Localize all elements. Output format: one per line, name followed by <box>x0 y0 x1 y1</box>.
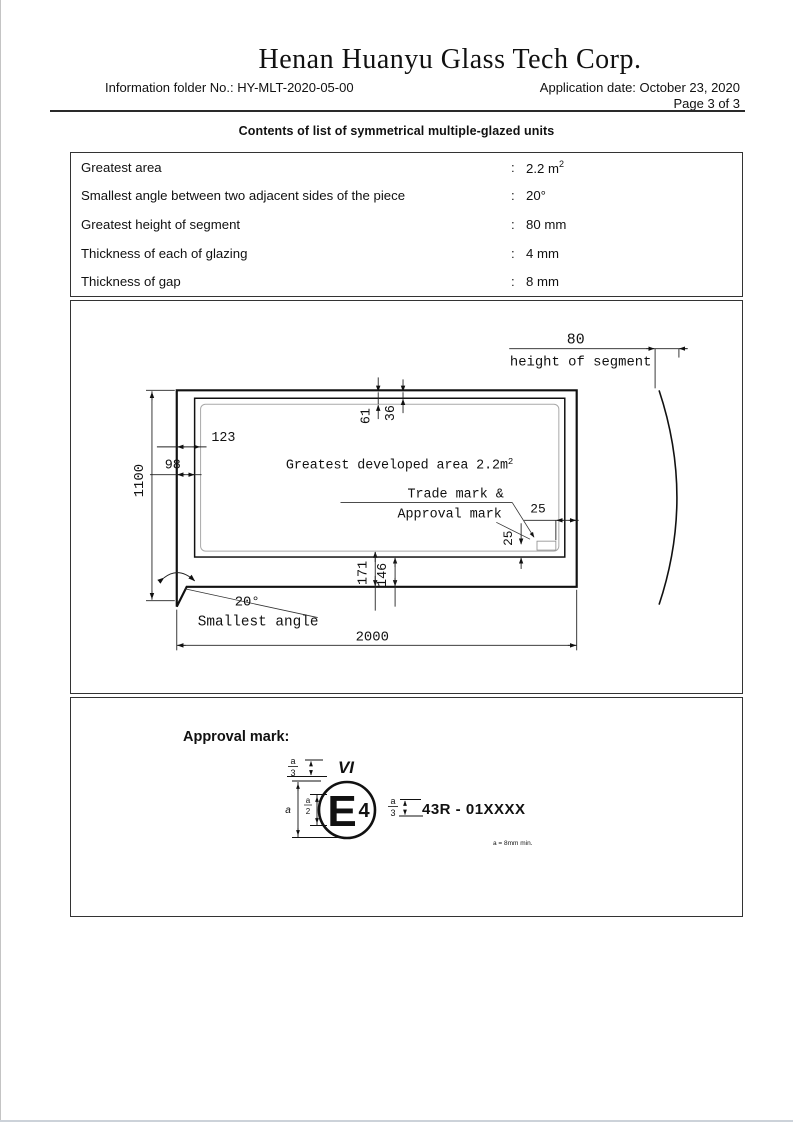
document-page: Henan Huanyu Glass Tech Corp. Informatio… <box>0 0 793 1122</box>
dim-top-insets: 61 36 <box>359 377 403 424</box>
dim-80-label: 80 <box>567 333 585 349</box>
approval-code: 43R - 01XXXX <box>422 801 526 818</box>
smallest-angle-callout: 20° Smallest angle <box>164 573 319 631</box>
spec-value: 8 mm <box>525 274 559 289</box>
spec-colon: : <box>511 274 525 289</box>
table-row: Smallest angle between two adjacent side… <box>71 182 742 211</box>
spec-value: 2.2 m2 <box>525 159 564 176</box>
dim-height-of-segment: 80 height of segment <box>509 333 688 605</box>
spec-colon: : <box>511 160 525 175</box>
dim-36-label: 36 <box>384 405 399 421</box>
dim-a3-right: a 3 <box>388 796 423 818</box>
spec-colon: : <box>511 188 525 203</box>
page-left-edge <box>0 0 1 1122</box>
dim-25v-label: 25 <box>501 530 516 545</box>
dim-a3-top: a 3 <box>287 756 327 778</box>
dim-1100-label: 1100 <box>132 464 148 497</box>
dim-bottom-insets: 171 146 <box>356 552 395 611</box>
table-row: Thickness of gap : 8 mm <box>71 267 742 296</box>
glazing-unit-drawing: 1100 2000 80 height of segment <box>71 301 742 692</box>
spec-label: Greatest height of segment <box>71 217 511 232</box>
trademark-callout-line2: Approval mark <box>397 507 501 522</box>
dim-171-label: 171 <box>356 561 371 585</box>
trademark-location-box <box>537 541 556 550</box>
header-rule <box>50 110 745 112</box>
spec-value-sup: 2 <box>559 159 564 169</box>
spec-colon: : <box>511 246 525 261</box>
smallest-angle-label: Smallest angle <box>198 615 319 631</box>
angle-value-label: 20° <box>235 595 260 611</box>
spec-value: 4 mm <box>525 246 559 261</box>
dim-98-label: 98 <box>165 459 181 474</box>
approval-mark-heading: Approval mark: <box>183 729 289 745</box>
vi-label: VI <box>338 758 355 777</box>
frac-a: a <box>306 796 311 805</box>
spec-value-text: 2.2 m <box>526 161 559 176</box>
dim-61-label: 61 <box>359 408 374 424</box>
segment-arc <box>659 390 677 604</box>
spec-table: Greatest area : 2.2 m2 Smallest angle be… <box>70 152 743 297</box>
dim-25h-label: 25 <box>530 501 545 516</box>
e-mark-figure: E 4 VI a 3 a <box>281 751 541 861</box>
dim-2000-label: 2000 <box>356 629 389 645</box>
spec-value: 80 mm <box>525 217 566 232</box>
frac-3: 3 <box>390 808 395 818</box>
e-mark-circle: E 4 <box>319 782 375 838</box>
dim-1100: 1100 <box>132 390 175 600</box>
application-date: Application date: October 23, 2020 <box>540 80 740 95</box>
page-indicator: Page 3 of 3 <box>674 96 741 111</box>
spec-label: Thickness of each of glazing <box>71 246 511 261</box>
e-letter: E <box>327 787 356 836</box>
frac-2: 2 <box>306 807 311 816</box>
spec-label: Thickness of gap <box>71 274 511 289</box>
height-of-segment-label: height of segment <box>510 355 652 371</box>
trademark-callout-line1: Trade mark & <box>407 487 503 502</box>
developed-area-sup: 2 <box>508 457 513 467</box>
dim-123-label: 123 <box>211 431 235 446</box>
a-min-note: a = 8mm min. <box>493 840 533 847</box>
approval-mark-panel: Approval mark: E 4 VI a 3 <box>70 697 743 917</box>
spec-colon: : <box>511 217 525 232</box>
developed-area-text: Greatest developed area 2.2m <box>286 459 508 474</box>
table-row: Thickness of each of glazing : 4 mm <box>71 239 742 268</box>
frac-a: a <box>390 796 395 806</box>
company-title: Henan Huanyu Glass Tech Corp. <box>110 44 790 76</box>
spec-value: 20° <box>525 188 546 203</box>
dim-left-insets: 123 98 <box>150 431 235 475</box>
e-number: 4 <box>358 800 370 822</box>
document-title: Contents of list of symmetrical multiple… <box>0 124 793 138</box>
dim-a-label: a <box>285 805 291 816</box>
table-row: Greatest height of segment : 80 mm <box>71 210 742 239</box>
spec-label: Greatest area <box>71 160 511 175</box>
info-folder-no: Information folder No.: HY-MLT-2020-05-0… <box>105 80 354 95</box>
technical-drawing-panel: 1100 2000 80 height of segment <box>70 300 743 694</box>
dim-trademark-offsets: 25 25 <box>501 501 578 569</box>
dim-a2-inner: a 2 <box>304 795 327 826</box>
table-row: Greatest area : 2.2 m2 <box>71 153 742 182</box>
spec-label: Smallest angle between two adjacent side… <box>71 188 511 203</box>
dim-146-label: 146 <box>376 563 391 587</box>
frac-a: a <box>290 756 295 766</box>
developed-area-label: Greatest developed area 2.2m2 <box>286 457 513 474</box>
